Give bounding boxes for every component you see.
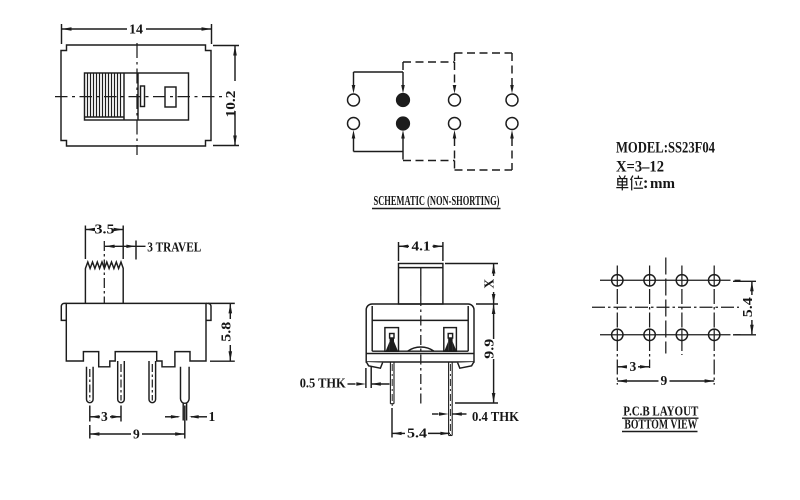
svg-text:14: 14 [129,22,143,37]
svg-text:3: 3 [630,359,637,374]
svg-text:5.4: 5.4 [407,426,427,441]
svg-text:4.1: 4.1 [412,239,431,254]
svg-text:X=3–12: X=3–12 [616,159,664,176]
svg-text:0.5 THK: 0.5 THK [300,376,346,391]
svg-text:5.8: 5.8 [218,322,233,342]
svg-text:BOTTOM VIEW: BOTTOM VIEW [624,418,697,433]
svg-text:3.5: 3.5 [95,222,115,237]
svg-text:9.9: 9.9 [482,338,497,358]
svg-text:SCHEMATIC (NON-SHORTING): SCHEMATIC (NON-SHORTING) [374,194,500,209]
svg-text:X: X [482,279,497,289]
svg-text:mm: mm [650,176,675,192]
svg-text:5.4: 5.4 [740,297,755,317]
svg-text:10.2: 10.2 [223,90,238,117]
svg-text:3 TRAVEL: 3 TRAVEL [147,240,201,255]
svg-text:9: 9 [133,427,140,442]
svg-text:1: 1 [209,409,216,424]
svg-text:0.4 THK: 0.4 THK [472,409,519,424]
svg-text:3: 3 [101,409,108,424]
svg-text:9: 9 [661,373,668,388]
svg-text:MODEL:SS23F04: MODEL:SS23F04 [616,140,715,157]
